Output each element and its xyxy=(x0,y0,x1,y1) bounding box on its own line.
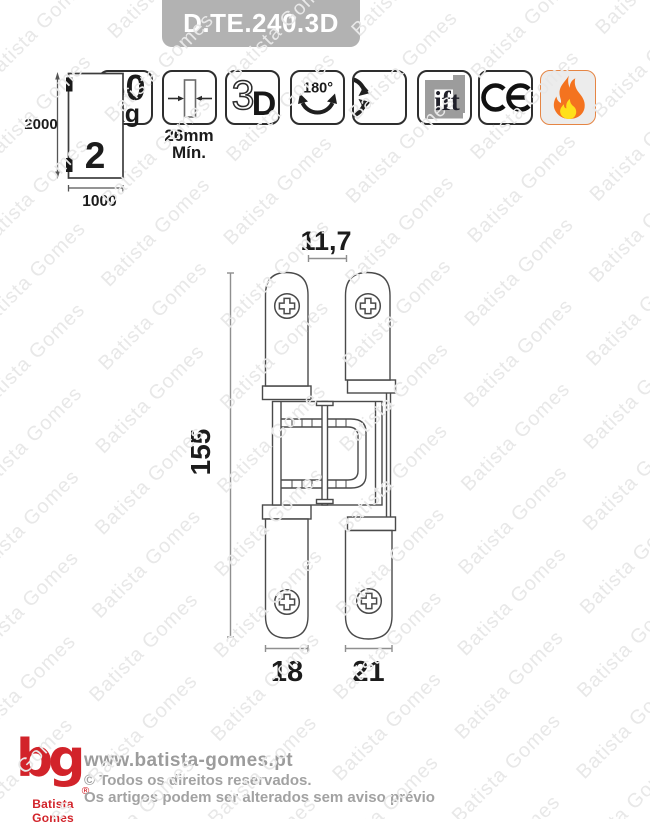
arrow-up-icon xyxy=(55,72,60,80)
hinge-count-label: 2 xyxy=(85,135,106,176)
plate-bottom-right xyxy=(348,517,396,531)
screw-top-right xyxy=(356,294,381,319)
lobe-top-right xyxy=(346,273,391,381)
door-height-label: 2000 xyxy=(24,116,57,133)
product-sheet: D.TE.240.3D 60 kg 26mm Mín. 3 D 180° xyxy=(0,0,650,819)
plate-top-left xyxy=(263,386,312,400)
plate-top-right xyxy=(348,380,396,393)
technical-drawing-layer: 2000 2 1000 xyxy=(0,0,650,819)
website-link[interactable]: www.batista-gomes.pt xyxy=(84,750,293,772)
plate-bottom-left xyxy=(263,505,312,519)
screw-bottom-right xyxy=(357,589,382,614)
lobe-bottom-right xyxy=(346,531,393,640)
arrow-down-icon xyxy=(55,172,60,180)
dim-total-height: 155 xyxy=(185,429,216,476)
dim-left-leaf: 18 xyxy=(271,656,303,688)
bg-logo-icon: bg® xyxy=(16,736,90,796)
screw-bottom-left xyxy=(275,590,300,615)
hinge-mark-bottom xyxy=(66,158,73,172)
lobe-top-left xyxy=(266,273,309,387)
footer: bg® Batista Gomes www.batista-gomes.pt ©… xyxy=(0,732,650,819)
door-leaf-diagram: 2000 2 1000 xyxy=(24,72,123,210)
hinge-mark-top xyxy=(66,78,73,92)
lobe-bottom-left xyxy=(266,519,309,638)
company-logo: bg® Batista Gomes xyxy=(16,736,90,825)
center-pin xyxy=(322,402,328,506)
copyright-text: © Todos os direitos reservados. xyxy=(84,772,312,789)
door-width-label: 1000 xyxy=(82,193,116,210)
concealed-hinge-drawing xyxy=(263,273,396,640)
disclaimer-text: Os artigos podem ser alterados sem aviso… xyxy=(84,789,435,806)
dim-top-gap: 11,7 xyxy=(300,226,351,256)
screw-top-left xyxy=(275,294,300,319)
dim-right-leaf: 21 xyxy=(352,656,384,688)
company-name: Batista Gomes xyxy=(16,797,90,825)
